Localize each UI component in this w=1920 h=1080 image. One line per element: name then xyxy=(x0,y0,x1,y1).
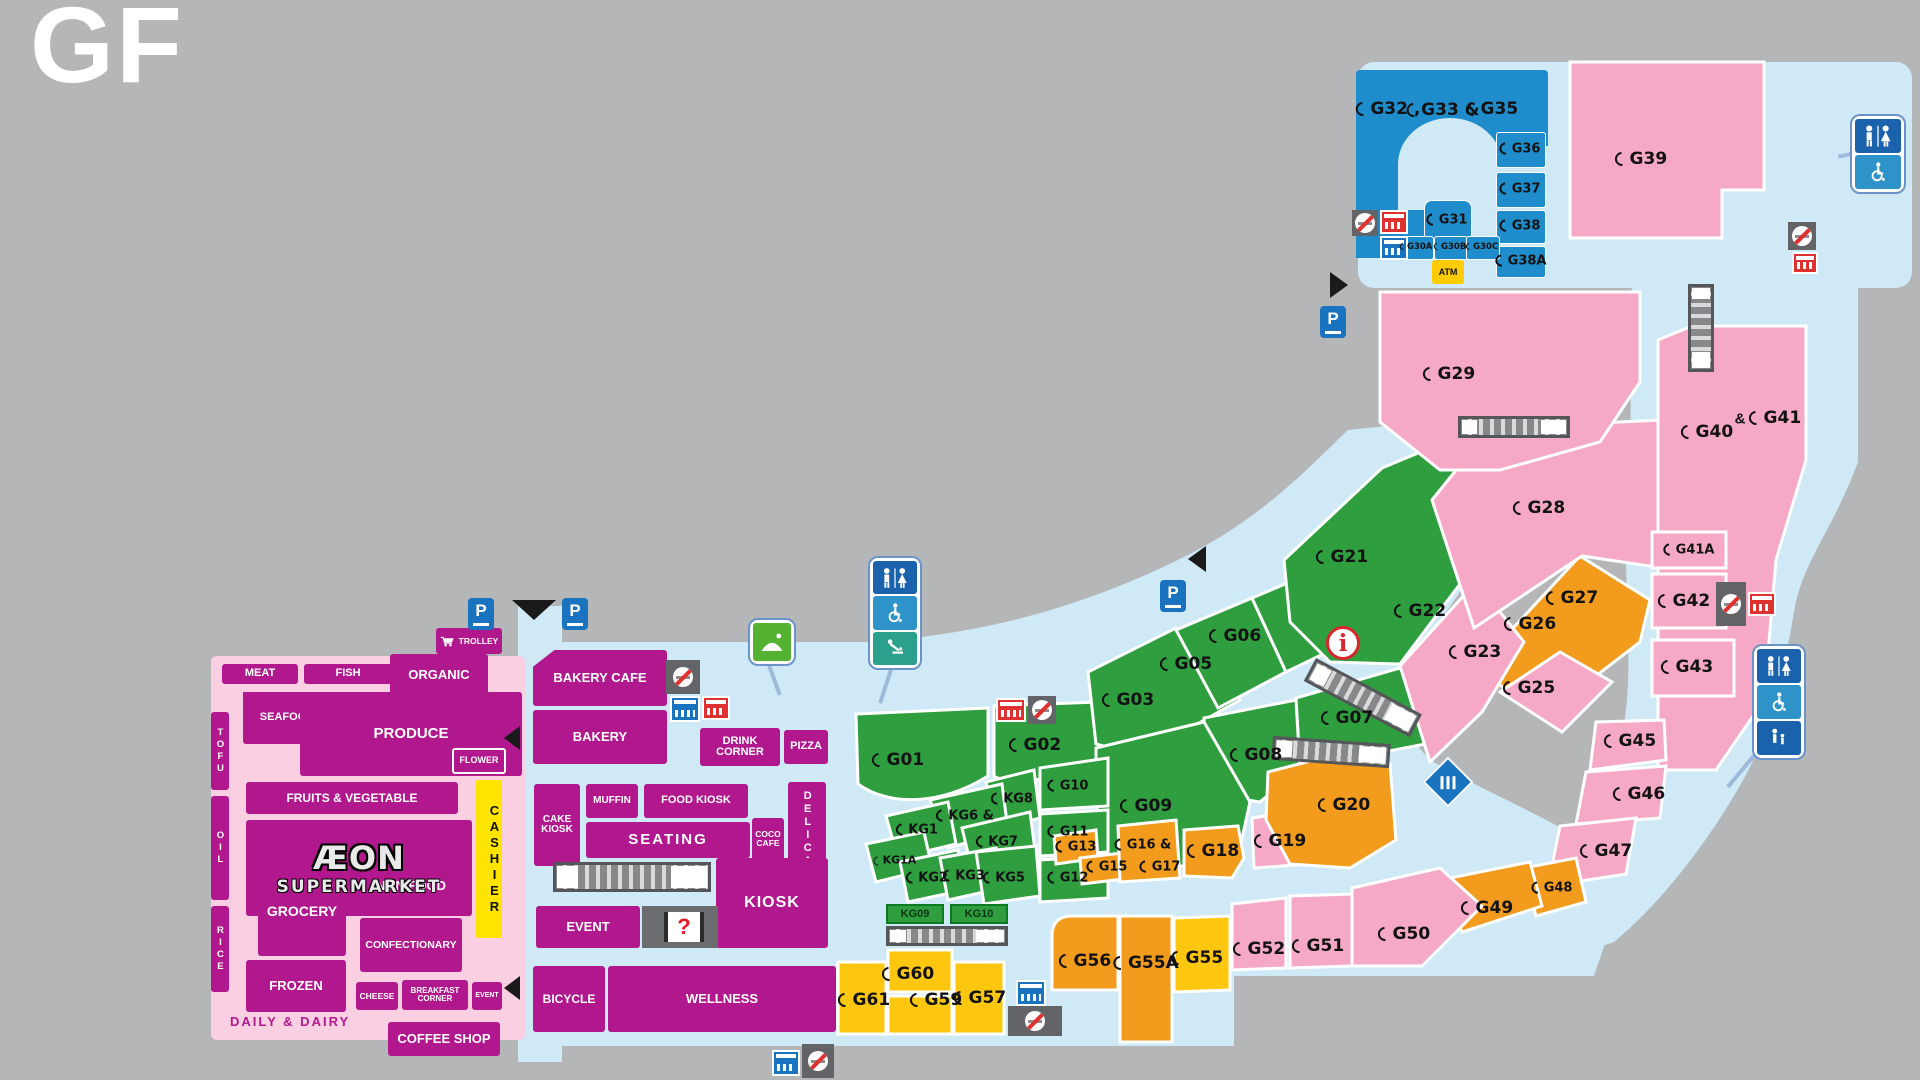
unit-label-g06: G06 xyxy=(1209,626,1261,646)
unit-label-g18: G18 xyxy=(1187,841,1239,861)
unit-label-g41a: G41A xyxy=(1664,543,1715,558)
storefront-icon-red xyxy=(996,698,1026,722)
unit-label-g39: G39 xyxy=(1615,149,1667,169)
shop-bakery-cafe: BAKERY CAFE xyxy=(533,650,667,706)
shop-cake-kiosk: CAKE KIOSK xyxy=(534,784,580,866)
unit-label-g30b: G30B xyxy=(1434,242,1467,252)
prayer-room-icon xyxy=(753,623,791,661)
unit-label-g11: G11 xyxy=(1048,825,1089,840)
trolley-label: TROLLEY xyxy=(459,637,499,646)
shop-pizza: PIZZA xyxy=(784,730,828,764)
zone-kg10: KG10 xyxy=(950,904,1008,924)
storefront-icon-red xyxy=(702,696,730,720)
accessible-icon xyxy=(873,596,917,629)
restroom-sign-top-right xyxy=(1850,114,1906,194)
unit-label-kg1: KG1 xyxy=(896,823,938,838)
supermarket-cashier-strip: CASHIER xyxy=(476,780,502,938)
no-smoking-icon xyxy=(666,660,700,694)
walkway-notch xyxy=(1398,118,1502,210)
shop-wellness: WELLNESS xyxy=(608,966,836,1032)
escalator-supermarket xyxy=(553,862,711,892)
supermarket-section-meat: MEAT xyxy=(222,664,298,684)
unit-label-g28: G28 xyxy=(1513,498,1565,518)
unit-label-kg3: KG3 xyxy=(943,869,985,884)
shop-bicycle: BICYCLE xyxy=(533,966,605,1032)
zone-g55a xyxy=(1120,916,1172,1042)
no-smoking-icon xyxy=(1788,222,1816,250)
unit-label-g61: G61 xyxy=(838,990,890,1010)
arrow-left-icon xyxy=(504,976,520,1000)
zone-g51 xyxy=(1290,894,1352,968)
unit-label-g46: G46 xyxy=(1613,784,1665,804)
unit-label-g16: G16 & xyxy=(1115,838,1172,853)
unit-label-g25: G25 xyxy=(1503,678,1555,698)
arrow-down-icon xyxy=(512,600,556,620)
shop-food-kiosk: FOOD KIOSK xyxy=(644,784,748,818)
unit-label-g40-g41-amp: & xyxy=(1735,411,1746,428)
supermarket-section-daily-dairy: DAILY & DAIRY xyxy=(230,1014,460,1034)
unit-label-g09: G09 xyxy=(1120,796,1172,816)
unit-label-g15: G15 xyxy=(1087,860,1128,875)
accessible-icon xyxy=(1757,685,1801,719)
restroom-mf-icon xyxy=(1855,119,1901,153)
unit-label-g10: G10 xyxy=(1048,779,1089,794)
escalator-kg09 xyxy=(886,926,1008,946)
unit-label-g03: G03 xyxy=(1102,690,1154,710)
unit-label-g13: G13 xyxy=(1056,840,1097,855)
unit-label-g50: G50 xyxy=(1378,924,1430,944)
supermarket-section-oil: OIL xyxy=(211,796,229,900)
supermarket-section-confectionary: CONFECTIONARY xyxy=(360,918,462,972)
parking-icon: P xyxy=(1160,580,1186,612)
unit-label-g21: G21 xyxy=(1316,547,1368,567)
unit-label-g47: G47 xyxy=(1580,841,1632,861)
escalator-right-corridor xyxy=(1688,284,1714,372)
unit-label-g30a: G30A xyxy=(1400,242,1433,252)
shop-drink-corner: DRINK CORNER xyxy=(700,728,780,766)
unit-label-kg8: KG8 xyxy=(991,792,1033,807)
unit-label-g60: G60 xyxy=(882,964,934,984)
storefront-icon-red xyxy=(1792,252,1818,274)
supermarket-section-flower: FLOWER xyxy=(452,748,506,774)
supermarket-section-fish: FISH xyxy=(304,664,392,684)
unit-label-kg6: KG6 & xyxy=(936,809,994,824)
unit-label-g52: G52 xyxy=(1233,939,1285,959)
arrow-right-icon xyxy=(1330,272,1348,298)
unit-label-g12: G12 xyxy=(1048,871,1089,886)
baby-care-icon xyxy=(873,632,917,665)
supermarket-section-fruits-vegetable: FRUITS & VEGETABLE xyxy=(246,782,458,814)
supermarket-section-rice: RICE xyxy=(211,906,229,992)
unit-label-g31: G31 xyxy=(1427,213,1468,228)
no-smoking-icon xyxy=(1028,696,1056,724)
unit-label-g40: G40 xyxy=(1681,422,1733,442)
supermarket-section-cheese: CHEESE xyxy=(356,982,398,1010)
shop-bakery: BAKERY xyxy=(533,710,667,764)
parking-icon: P xyxy=(562,598,588,630)
zone-g52 xyxy=(1232,898,1286,970)
supermarket-section-breakfast-corner: BREAKFAST CORNER xyxy=(402,980,468,1010)
family-icon xyxy=(1757,721,1801,755)
unit-label-g36: G36 xyxy=(1500,142,1541,157)
parking-icon: P xyxy=(1320,306,1346,338)
unit-label-g59: G59 xyxy=(910,990,962,1010)
brand-aeon: ÆON xyxy=(313,839,405,877)
no-smoking-icon xyxy=(802,1044,834,1078)
restroom-sign-central xyxy=(868,556,922,670)
unit-label-g41: G41 xyxy=(1749,408,1801,428)
unit-label-kg5: KG5 xyxy=(983,871,1025,886)
supermarket-brand: ÆON SUPERMARKET xyxy=(246,820,472,916)
supermarket-section-event: EVENT xyxy=(472,982,502,1010)
unit-label-g27: G27 xyxy=(1546,588,1598,608)
unit-label-g37: G37 xyxy=(1500,182,1541,197)
unit-label-g42: G42 xyxy=(1658,591,1710,611)
unit-label-g17: G17 xyxy=(1140,860,1181,875)
shop-coco-cafe: COCO CAFE xyxy=(752,818,784,860)
escalator-g29 xyxy=(1458,416,1570,438)
unit-label-g48: G48 xyxy=(1532,881,1573,896)
zone-kg09: KG09 xyxy=(886,904,944,924)
shop-seating: SEATING xyxy=(586,822,750,858)
unit-label-g56: G56 xyxy=(1059,951,1111,971)
unit-label-g20: G20 xyxy=(1318,795,1370,815)
unit-label-g22: G22 xyxy=(1394,601,1446,621)
unit-label-g29: G29 xyxy=(1423,364,1475,384)
supermarket-section-frozen: FROZEN xyxy=(246,960,346,1012)
floor-map: GF xyxy=(0,0,1920,1080)
unit-label-g38: G38 xyxy=(1500,219,1541,234)
restroom-sign-right xyxy=(1752,644,1806,760)
unit-label-g08: G08 xyxy=(1230,745,1282,765)
arrow-left-icon xyxy=(504,726,520,750)
arrow-left-icon xyxy=(1188,546,1206,572)
no-smoking-icon xyxy=(1352,210,1378,236)
unit-label-g45: G45 xyxy=(1604,731,1656,751)
parking-icon: P xyxy=(468,598,494,630)
unit-label-g55a: G55A xyxy=(1113,953,1178,973)
unit-label-g26: G26 xyxy=(1504,614,1556,634)
unit-label-g49: G49 xyxy=(1461,898,1513,918)
unit-label-g19: G19 xyxy=(1254,831,1306,851)
storefront-icon-red xyxy=(1380,210,1408,234)
unit-label-g05: G05 xyxy=(1160,654,1212,674)
storefront-icon-blue xyxy=(1016,980,1046,1006)
unit-label-g43: G43 xyxy=(1661,657,1713,677)
shop-kiosk: KIOSK xyxy=(716,858,828,948)
information-question-box: ? xyxy=(664,912,704,942)
unit-label-kg1a: KG1A xyxy=(874,854,917,867)
no-smoking-icon xyxy=(1716,582,1746,626)
supermarket-trolley-bay: TROLLEY xyxy=(436,628,502,654)
storefront-icon-blue xyxy=(772,1050,800,1076)
information-icon: i xyxy=(1326,626,1360,660)
atm-booth: ATM xyxy=(1432,260,1464,284)
unit-label-g23: G23 xyxy=(1449,642,1501,662)
unit-label-g35: G35 xyxy=(1466,99,1518,119)
trolley-icon xyxy=(440,635,456,648)
prayer-room-sign xyxy=(748,618,796,666)
unit-label-g30c: G30C xyxy=(1466,242,1498,252)
storefront-icon-blue xyxy=(670,696,700,722)
brand-supermarket: SUPERMARKET xyxy=(277,877,442,897)
unit-label-g07: G07 xyxy=(1321,708,1373,728)
accessible-icon xyxy=(1855,155,1901,189)
unit-label-g01: G01 xyxy=(872,750,924,770)
unit-label-g38a: G38A xyxy=(1496,254,1547,269)
unit-label-g02: G02 xyxy=(1009,735,1061,755)
restroom-mf-icon xyxy=(1757,649,1801,683)
no-smoking-icon xyxy=(1008,1006,1062,1036)
unit-label-g51: G51 xyxy=(1292,936,1344,956)
supermarket-section-organic: ORGANIC xyxy=(390,654,488,696)
supermarket-section-tofu: TOFU xyxy=(211,712,229,790)
restroom-mf-icon xyxy=(873,561,917,594)
shop-event: EVENT xyxy=(536,906,640,948)
unit-label-kg2: KG2 xyxy=(906,871,948,886)
unit-label-kg7: KG7 xyxy=(976,835,1018,850)
storefront-icon-red xyxy=(1748,592,1776,616)
shop-muffin: MUFFIN xyxy=(586,784,638,818)
